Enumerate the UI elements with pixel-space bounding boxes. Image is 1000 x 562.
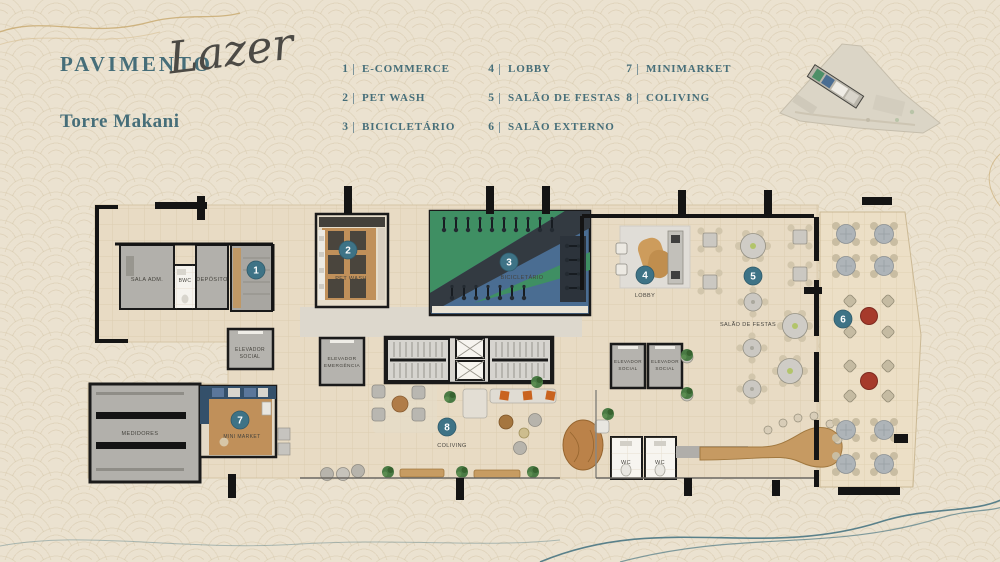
legend-column-1: 1E-COMMERCE 2PET WASH 3BICICLETÁRIO: [337, 60, 455, 147]
marker-4: 4: [636, 266, 654, 284]
firepit-table: [861, 308, 878, 325]
svg-text:2: 2: [345, 246, 351, 257]
divider: [499, 64, 500, 75]
divider: [637, 93, 638, 104]
firepit-table: [861, 373, 878, 390]
divider: [499, 93, 500, 104]
divider: [353, 93, 354, 104]
legend-item: 3BICICLETÁRIO: [337, 118, 455, 136]
legend-item: 5SALÃO DE FESTAS: [483, 89, 621, 107]
room-pet-wash: [316, 214, 388, 307]
legend-item: 7MINIMARKET: [621, 60, 731, 78]
marker-1: 1: [247, 261, 265, 279]
legend-item: 6SALÃO EXTERNO: [483, 118, 621, 136]
svg-text:4: 4: [642, 271, 648, 282]
room-wc-2: [645, 437, 676, 479]
divider: [353, 64, 354, 75]
site-key-plan: [780, 44, 940, 133]
legend-item: 1E-COMMERCE: [337, 60, 455, 78]
elevator-shaft-icon: [456, 339, 484, 358]
label-pet-wash: PET WASH: [335, 276, 367, 282]
room-wc-1: [611, 437, 642, 479]
label-sala-adm: SALA ADM.: [131, 277, 163, 283]
divider: [353, 122, 354, 133]
legend-column-2: 4LOBBY 5SALÃO DE FESTAS 6SALÃO EXTERNO: [483, 60, 621, 147]
page-title: PAVIMENTO Lazer Torre Makani: [60, 52, 213, 133]
divider: [637, 64, 638, 75]
legend-item: 4LOBBY: [483, 60, 621, 78]
divider: [499, 122, 500, 133]
legend-item: 8COLIVING: [621, 89, 731, 107]
label-salao-de-festas: SALÃO DE FESTAS: [720, 321, 776, 328]
poster-background: PAVIMENTO Lazer Torre Makani 1E-COMMERCE…: [0, 0, 1000, 562]
svg-text:1: 1: [253, 266, 259, 277]
label-lobby: LOBBY: [635, 293, 655, 299]
marker-6: 6: [834, 310, 852, 328]
label-coliving: COLIVING: [437, 443, 466, 449]
tower-name: Torre Makani: [60, 111, 213, 133]
marker-3: 3: [500, 253, 518, 271]
label-medidores: MEDIDORES: [122, 431, 159, 437]
svg-text:8: 8: [444, 423, 450, 434]
legend-item: 2PET WASH: [337, 89, 455, 107]
room-bwc: [174, 265, 196, 309]
legend-column-3: 7MINIMARKET 8COLIVING: [621, 60, 731, 118]
elevator-shaft-icon: [456, 361, 484, 380]
label-bwc: BWC: [179, 278, 192, 284]
svg-text:5: 5: [750, 272, 756, 283]
marker-7: 7: [231, 411, 249, 429]
label-mini-market: MINI MARKET: [223, 434, 260, 440]
stair-core: [385, 337, 553, 383]
label-wc: WC: [621, 460, 631, 466]
marker-5: 5: [744, 267, 762, 285]
svg-text:7: 7: [237, 416, 243, 427]
marker-2: 2: [339, 241, 357, 259]
marker-8: 8: [438, 418, 456, 436]
label-deposito: DEPÓSITO: [196, 276, 228, 283]
label-bicicletario: BICICLETÁRIO: [500, 274, 543, 281]
svg-text:3: 3: [506, 258, 512, 269]
svg-text:6: 6: [840, 315, 846, 326]
label-wc: WC: [655, 460, 665, 466]
